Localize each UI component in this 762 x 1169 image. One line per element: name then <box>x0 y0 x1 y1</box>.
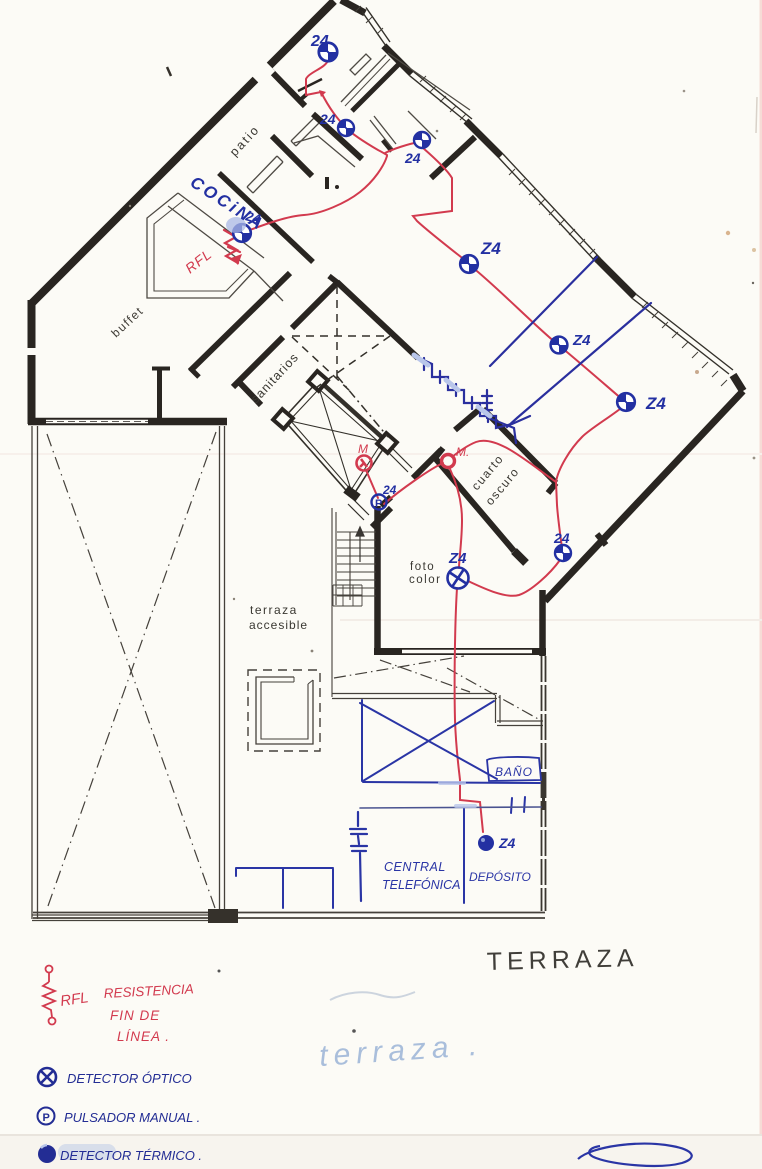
svg-text:FIN DE: FIN DE <box>110 1008 160 1023</box>
svg-text:LÍNEA .: LÍNEA . <box>117 1029 170 1044</box>
svg-text:P: P <box>43 1112 50 1124</box>
svg-text:accesible: accesible <box>249 618 308 632</box>
svg-text:DEPÓSITO: DEPÓSITO <box>469 869 531 884</box>
svg-text:DETECTOR ÓPTICO: DETECTOR ÓPTICO <box>67 1071 192 1086</box>
svg-text:DETECTOR TÉRMICO .: DETECTOR TÉRMICO . <box>60 1148 202 1163</box>
svg-text:PULSADOR MANUAL .: PULSADOR MANUAL . <box>64 1110 200 1125</box>
svg-text:Z4: Z4 <box>498 835 516 851</box>
svg-text:P: P <box>375 498 382 510</box>
svg-text:foto: foto <box>410 561 435 573</box>
svg-text:CENTRAL: CENTRAL <box>384 860 446 874</box>
svg-text:24: 24 <box>404 150 421 166</box>
svg-text:color: color <box>409 574 441 586</box>
svg-text:24: 24 <box>319 111 336 127</box>
svg-text:24: 24 <box>382 483 397 497</box>
svg-text:TELEFÓNICA: TELEFÓNICA <box>382 877 461 892</box>
svg-text:Z4: Z4 <box>645 394 666 413</box>
svg-text:Z4: Z4 <box>448 550 467 567</box>
svg-text:M.: M. <box>456 445 469 459</box>
svg-text:terraza: terraza <box>250 603 298 617</box>
svg-text:Z4: Z4 <box>480 239 501 258</box>
svg-text:BAÑO: BAÑO <box>495 765 533 779</box>
svg-text:M: M <box>358 442 368 456</box>
svg-text:Z4: Z4 <box>572 332 591 349</box>
svg-text:24: 24 <box>310 33 329 50</box>
svg-text:TERRAZA: TERRAZA <box>486 944 638 976</box>
svg-text:24: 24 <box>553 530 570 546</box>
